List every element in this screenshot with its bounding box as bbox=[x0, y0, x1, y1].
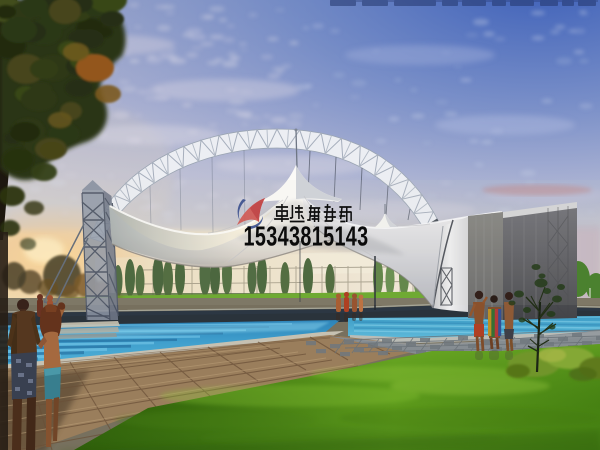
svg-text:15343815143: 15343815143 bbox=[244, 221, 369, 252]
